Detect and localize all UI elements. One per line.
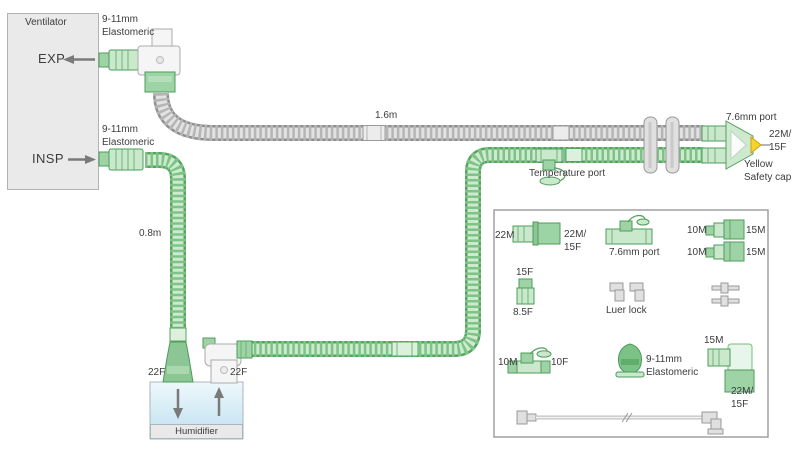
humidifier-tube-joiner: [392, 342, 418, 356]
legend-15f-label: 15F: [516, 266, 533, 279]
insp-tube-cuff: [170, 328, 186, 341]
circuit-artwork: [0, 0, 800, 450]
humidifier-label: Humidifier: [150, 424, 243, 439]
legend-10m-label: 10M: [687, 224, 706, 237]
insp-length-label: 0.8m: [139, 227, 161, 240]
legend-15m-label: 15M: [746, 224, 765, 237]
patient-connector-label: 22M/ 15F: [769, 128, 791, 154]
exp-arrow-icon: [63, 55, 95, 64]
exp-length-label: 1.6m: [375, 109, 397, 122]
insp-tube-adapter: [566, 149, 582, 162]
exp-tube-adapter: [553, 126, 569, 140]
insp-arrow-icon: [68, 155, 96, 164]
legend-elbow-15m-label: 15M: [704, 334, 723, 347]
legend-10m-label: 10M: [498, 356, 517, 369]
legend-85f-label: 8.5F: [513, 306, 533, 319]
breathing-circuit-diagram: Ventilator EXP INSP 9-11mm Elastomeric 9…: [0, 0, 800, 450]
legend-10m-label: 10M: [687, 246, 706, 259]
legend-10f-label: 10F: [551, 356, 568, 369]
ventilator-label: Ventilator: [25, 16, 80, 29]
yellow-safety-cap-label: Yellow Safety cap: [744, 158, 791, 184]
legend-elastomeric-label: 9-11mm Elastomeric: [646, 353, 698, 379]
exp-tube-joiner: [363, 126, 385, 141]
humidifier-inlet-label: 22F: [148, 366, 165, 379]
humidifier-outlet-label: 22F: [230, 366, 247, 379]
yellow-safety-cap: [751, 137, 761, 153]
legend-76mm-port-label: 7.6mm port: [609, 246, 660, 259]
legend-15m-label: 15M: [746, 246, 765, 259]
76mm-port-label: 7.6mm port: [726, 111, 777, 124]
legend-luer-lock-label: Luer lock: [606, 304, 647, 317]
legend-22m15f-label: 22M/ 15F: [564, 228, 586, 254]
insp-limb-tube: [145, 160, 178, 342]
insp-connector: [99, 149, 143, 170]
exp-limb-tube: [161, 93, 703, 133]
legend-22m-label: 22M: [495, 229, 514, 242]
legend-elbow-22m15f-label: 22M/ 15F: [731, 385, 753, 411]
humidifier-inlet-connector: [163, 342, 193, 382]
legend-15f-85f-connector: [517, 279, 534, 304]
insp-elastomeric-label: 9-11mm Elastomeric: [102, 123, 154, 149]
exp-label: EXP: [38, 51, 65, 68]
exp-connector: [99, 50, 142, 70]
exp-elastomeric-label: 9-11mm Elastomeric: [102, 13, 154, 39]
temperature-port-label: Temperature port: [529, 167, 605, 180]
insp-label: INSP: [32, 151, 64, 168]
